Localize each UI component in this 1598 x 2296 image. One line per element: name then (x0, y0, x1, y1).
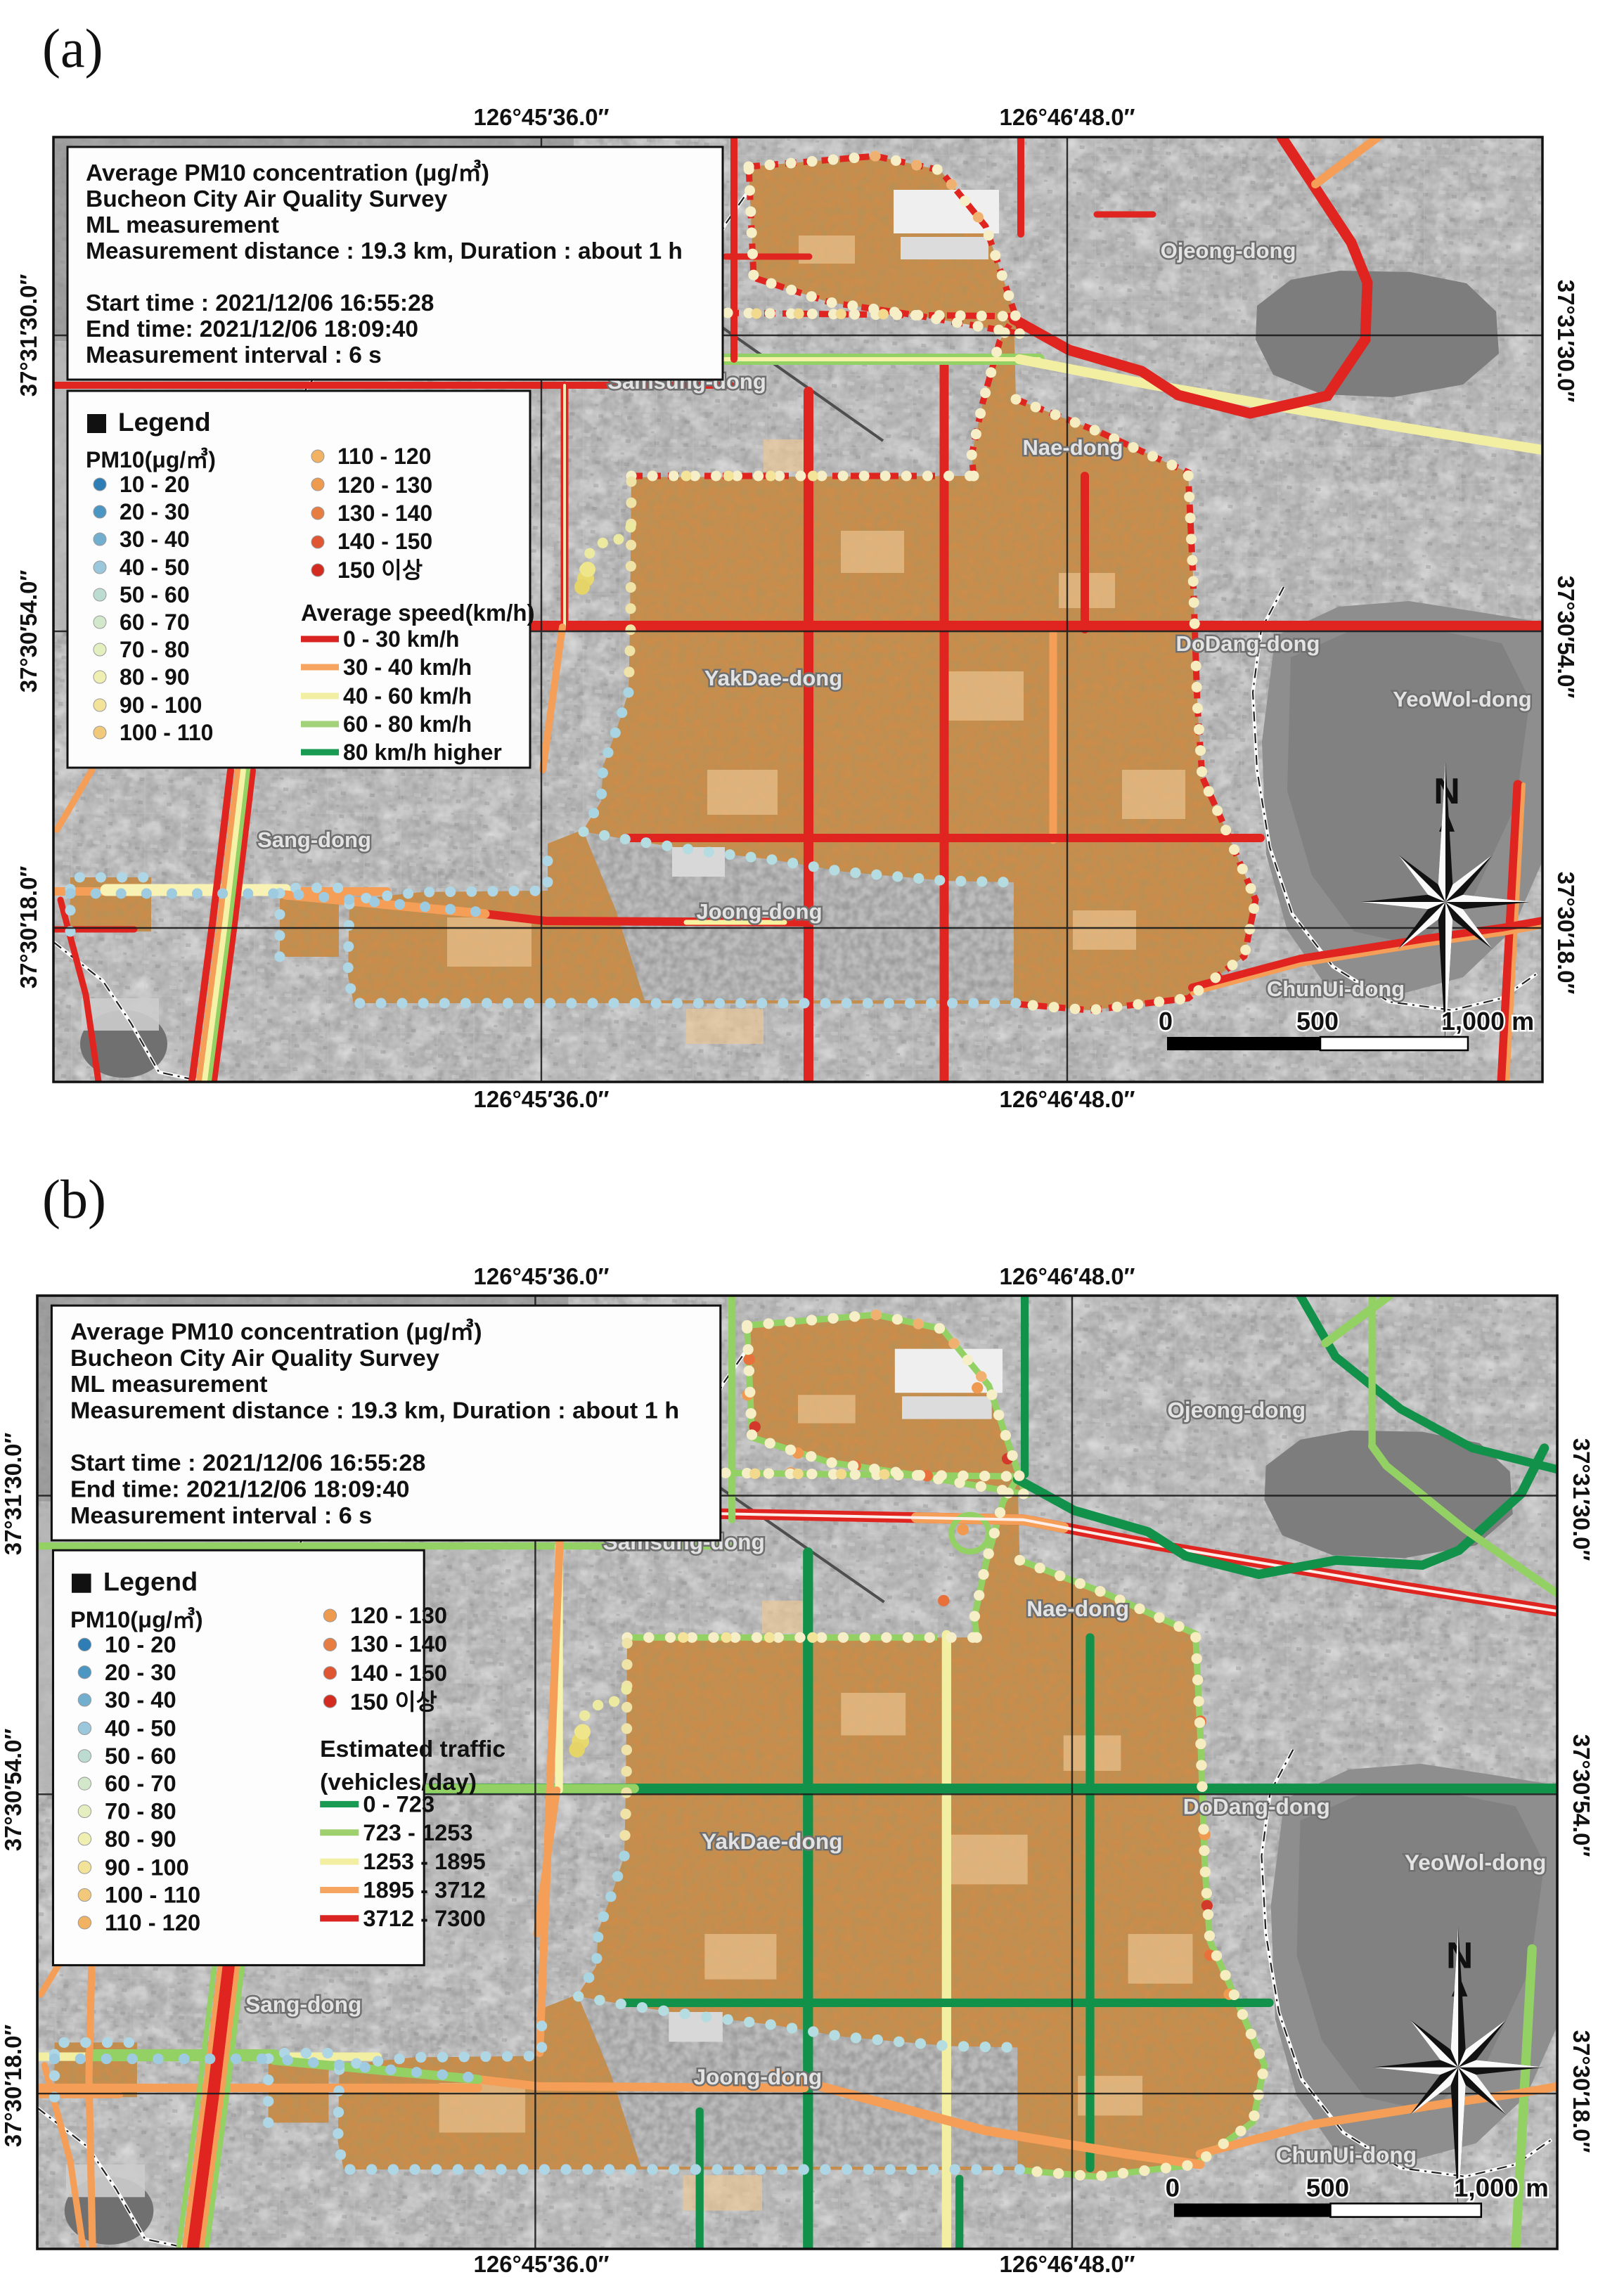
svg-text:37°30′54.0″: 37°30′54.0″ (0, 1729, 26, 1852)
svg-text:37°31′30.0″: 37°31′30.0″ (1568, 1438, 1594, 1561)
svg-text:37°31′30.0″: 37°31′30.0″ (1553, 280, 1579, 403)
svg-text:37°30′18.0″: 37°30′18.0″ (1553, 872, 1579, 995)
svg-text:(a): (a) (42, 18, 103, 79)
svg-text:126°45′36.0″: 126°45′36.0″ (474, 1263, 610, 1289)
svg-text:37°30′18.0″: 37°30′18.0″ (15, 866, 41, 989)
svg-text:37°30′18.0″: 37°30′18.0″ (1568, 2030, 1594, 2153)
svg-text:126°46′48.0″: 126°46′48.0″ (1000, 1086, 1135, 1112)
svg-text:(b): (b) (42, 1168, 106, 1230)
svg-text:126°45′36.0″: 126°45′36.0″ (474, 104, 610, 130)
svg-text:37°31′30.0″: 37°31′30.0″ (0, 1433, 26, 1556)
svg-text:37°31′30.0″: 37°31′30.0″ (15, 274, 41, 397)
svg-text:37°30′54.0″: 37°30′54.0″ (15, 570, 41, 693)
svg-text:37°30′54.0″: 37°30′54.0″ (1553, 576, 1579, 699)
svg-text:126°46′48.0″: 126°46′48.0″ (1000, 2251, 1135, 2277)
svg-text:37°30′54.0″: 37°30′54.0″ (1568, 1734, 1594, 1857)
svg-text:126°45′36.0″: 126°45′36.0″ (474, 1086, 610, 1112)
svg-text:126°46′48.0″: 126°46′48.0″ (1000, 104, 1135, 130)
svg-text:126°45′36.0″: 126°45′36.0″ (474, 2251, 610, 2277)
svg-text:37°30′18.0″: 37°30′18.0″ (0, 2025, 26, 2148)
svg-text:126°46′48.0″: 126°46′48.0″ (1000, 1263, 1135, 1289)
